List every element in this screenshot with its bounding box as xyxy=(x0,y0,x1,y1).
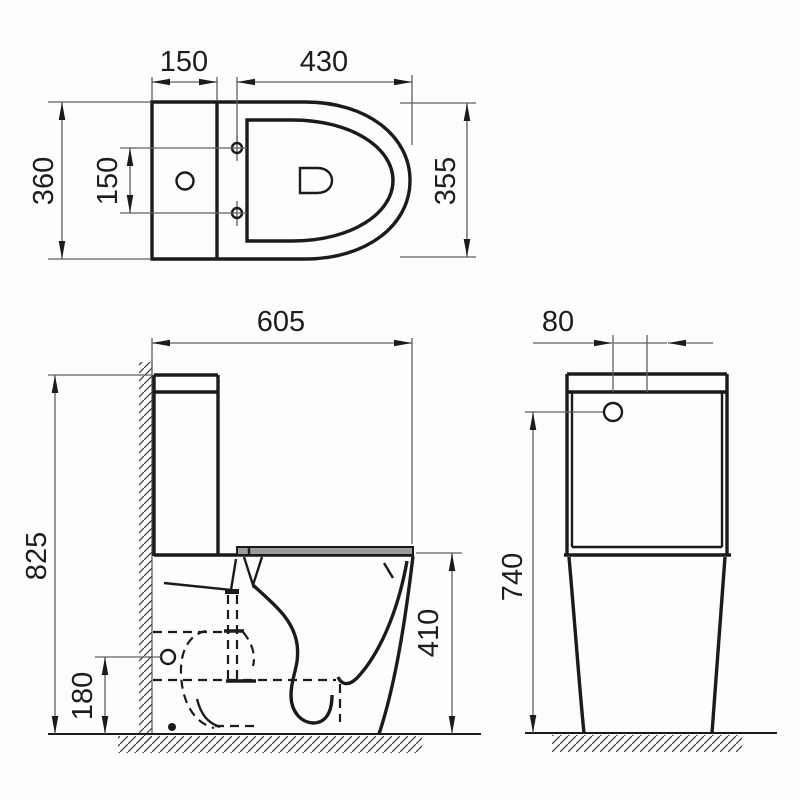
dim-outlet-height: 180 xyxy=(67,672,99,720)
dim-bowl-width: 355 xyxy=(430,157,462,205)
front-ground-hatch xyxy=(552,735,742,752)
dim-overall-depth: 605 xyxy=(257,306,305,338)
front-dimension-lines xyxy=(533,343,713,733)
front-pedestal xyxy=(569,557,725,733)
side-fixing-dot xyxy=(168,723,176,731)
dim-cistern-height: 740 xyxy=(497,553,529,601)
dim-bowl-height: 410 xyxy=(413,609,445,657)
dim-button-offset: 80 xyxy=(542,306,574,338)
side-extension-lines xyxy=(48,338,462,657)
dim-bowl-depth: 430 xyxy=(300,46,348,78)
dim-fixing-hole-spacing: 150 xyxy=(92,157,124,205)
dim-tank-depth: 150 xyxy=(160,46,208,78)
dim-overall-width: 360 xyxy=(28,157,60,205)
front-cistern xyxy=(564,374,731,556)
side-view: 605 825 180 410 xyxy=(21,306,481,753)
seat-lid-bar xyxy=(237,547,413,555)
drawing-svg: 150 430 360 150 355 xyxy=(0,0,800,800)
side-trap-hidden-lines xyxy=(153,595,340,728)
side-cistern xyxy=(154,375,218,556)
side-bowl-profile xyxy=(164,556,413,734)
front-view: 80 740 xyxy=(497,306,777,752)
plan-tank-button xyxy=(177,173,194,190)
plan-seat-inner-outline xyxy=(247,120,393,241)
dim-overall-height: 825 xyxy=(21,532,53,580)
wall-hatch xyxy=(139,362,152,744)
plan-outlet-hole xyxy=(300,168,332,193)
side-ground-hatch xyxy=(118,736,422,753)
front-flush-button xyxy=(604,403,622,421)
side-outlet-hole xyxy=(161,650,175,664)
side-dimension-lines xyxy=(55,343,452,734)
toilet-dimension-drawing: 150 430 360 150 355 xyxy=(0,0,800,800)
plan-outer-outline xyxy=(152,102,410,259)
plan-view: 150 430 360 150 355 xyxy=(28,46,476,259)
